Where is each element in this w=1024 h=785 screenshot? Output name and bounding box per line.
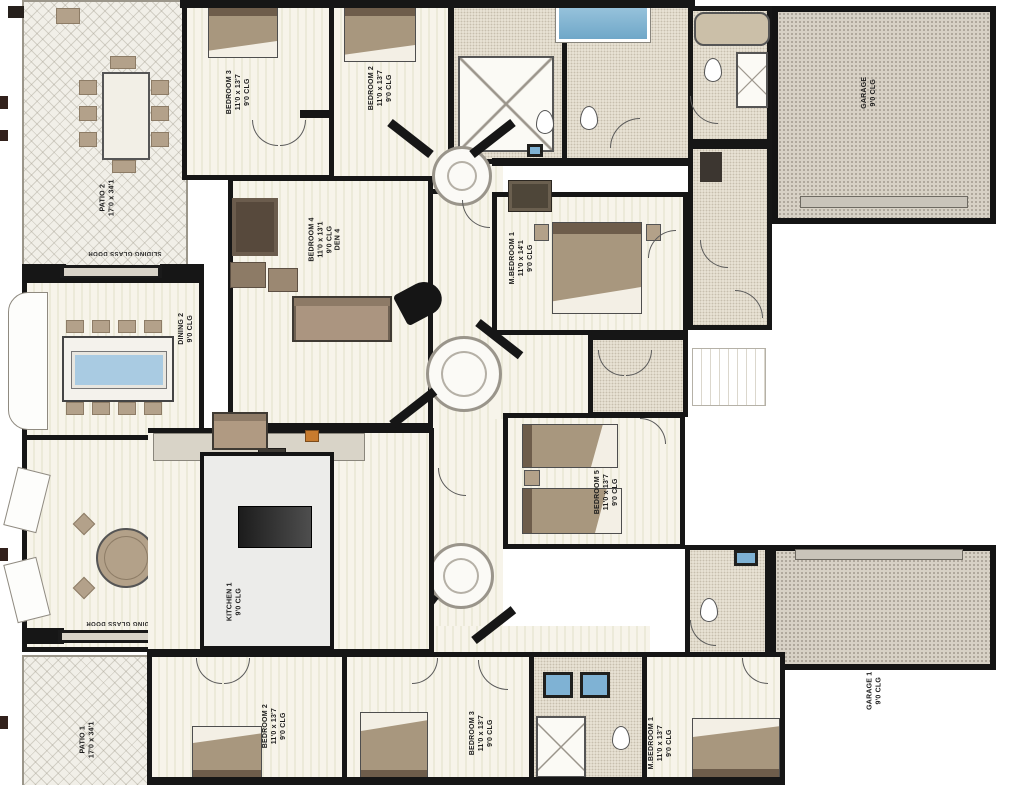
room-dims: 17'0 x 34'1 (108, 180, 117, 217)
room-dims: 11'0 x 13'7 (235, 70, 244, 114)
edge-marker (0, 548, 8, 561)
room-clg: 9'0 CLG (611, 470, 620, 514)
room-label-bedroom-2-top: BEDROOM 2 11'0 x 13'7 9'0 CLG (358, 50, 404, 126)
room-name: M.BEDROOM 1 (648, 717, 657, 769)
dining-chair (92, 320, 110, 333)
toilet (704, 58, 722, 82)
room-label-bedroom-5: BEDROOM 5 11'0 x 13'7 9'0 CLG (582, 455, 632, 530)
cabinet (268, 268, 298, 292)
room-clg: 9'0 CLG (326, 217, 335, 261)
window-glass (527, 144, 543, 157)
dresser (232, 198, 278, 256)
dining-chair (92, 402, 110, 415)
window-glass (734, 550, 758, 566)
room-name: PATIO 1 (79, 722, 88, 759)
dining-chair (144, 402, 162, 415)
dining-table-glass (72, 352, 166, 388)
patio-chair (112, 160, 136, 173)
garage-door (800, 196, 968, 208)
toilet (612, 726, 630, 750)
annotation-sliding-door-top: SLIDING GLASS DOOR (70, 246, 180, 260)
wall-segment (147, 777, 785, 785)
sofa (292, 296, 392, 342)
toilet (580, 106, 598, 130)
edge-marker (0, 130, 8, 141)
cooktop (238, 506, 312, 548)
room-dims: 17'0 x 34'1 (88, 722, 97, 759)
room-name: BEDROOM 2 (368, 66, 377, 110)
outdoor-dining-table (102, 72, 150, 160)
toilet (536, 110, 554, 134)
breakfast-table (96, 528, 156, 588)
dining-chair (118, 320, 136, 333)
room-clg: 9'0 CLG (243, 70, 252, 114)
wall-segment (300, 110, 334, 118)
room-name: GARAGE (861, 77, 870, 109)
room-label-master-bedroom-top: M.BEDROOM 1 11'0 x 14'1 9'0 CLG (500, 220, 544, 296)
room-clg: 9'0 CLG (875, 672, 884, 710)
patio-side-table (56, 8, 80, 24)
room-label-garage-top: GARAGE 9'0 CLG (840, 55, 900, 130)
patio-chair (110, 56, 136, 69)
toilet (700, 598, 718, 622)
room-label-patio-2: PATIO 2 17'0 x 34'1 (88, 170, 128, 226)
room-clg: 9'0 CLG (187, 313, 196, 345)
shower (536, 716, 586, 778)
nightstand (524, 470, 540, 486)
room-clg: 9'0 CLG (279, 704, 288, 748)
room-label-bedroom-4: BEDROOM 4 11'0 x 13'1 9'0 CLG DEN 4 (300, 200, 352, 278)
edge-marker (0, 96, 8, 109)
patio-chair (151, 132, 169, 147)
dining-chair (118, 402, 136, 415)
room-name: PATIO 2 (99, 180, 108, 217)
wall-segment (492, 158, 692, 166)
room-label-kitchen-1: KITCHEN 1 9'0 CLG (212, 568, 258, 636)
floor-plan: PATIO 2 17'0 x 34'1 SLIDING GLASS DOOR D… (0, 0, 1024, 785)
room-dims: 11'0 x 13'7 (657, 717, 666, 769)
patio-chair (79, 132, 97, 147)
room-name: BEDROOM 3 (469, 711, 478, 755)
room-name: GARAGE 1 (867, 672, 876, 710)
cabinet (230, 262, 266, 288)
room-clg: 9'0 CLG (870, 77, 879, 109)
round-rug (426, 336, 502, 412)
garage-door (795, 549, 963, 560)
room-clg: 9'0 CLG (235, 583, 244, 622)
sliding-glass-door-glass (64, 268, 158, 276)
edge-marker (0, 716, 8, 729)
room-clg: 9'0 CLG (486, 711, 495, 755)
room-name: M.BEDROOM 1 (509, 232, 518, 284)
room-label-garage-bottom: GARAGE 1 9'0 CLG (848, 655, 903, 727)
room-name: BEDROOM 3 (226, 70, 235, 114)
room-dims: 11'0 x 13'7 (478, 711, 487, 755)
bay-window (8, 292, 48, 430)
round-rug (432, 146, 492, 206)
room-label-bedroom-2-bottom: BEDROOM 2 11'0 x 13'7 9'0 CLG (252, 682, 298, 770)
dining-chair (66, 320, 84, 333)
patio-chair (151, 106, 169, 121)
bed (208, 6, 278, 58)
patio-chair (79, 80, 97, 95)
room-dims: 11'0 x 13'7 (603, 470, 612, 514)
garage-bottom (770, 545, 996, 670)
room-clg: 9'0 CLG (665, 717, 674, 769)
window-glass (543, 672, 573, 698)
loveseat (212, 412, 268, 450)
window-glass (580, 672, 610, 698)
entry-foyer (588, 335, 688, 417)
master-bed (552, 222, 642, 314)
plan-marker (8, 6, 24, 18)
room-extra: DEN 4 (335, 217, 344, 261)
porch-steps (692, 348, 766, 406)
patio-chair (151, 80, 169, 95)
washer-dryer (700, 152, 722, 182)
room-name: KITCHEN 1 (226, 583, 235, 622)
room-name: BEDROOM 2 (262, 704, 271, 748)
bathtub (694, 12, 770, 46)
room-dims: 11'0 x 13'7 (377, 66, 386, 110)
dining-chair (66, 402, 84, 415)
patio-chair (79, 106, 97, 121)
sliding-glass-door-glass (62, 633, 158, 640)
dining-chair (144, 320, 162, 333)
room-name: BEDROOM 4 (308, 217, 317, 261)
bed (360, 712, 428, 780)
room-name: BEDROOM 5 (594, 470, 603, 514)
room-clg: 9'0 CLG (385, 66, 394, 110)
walk-in-shower (458, 56, 554, 152)
burner (305, 430, 319, 442)
room-label-dining-2: DINING 2 9'0 CLG (166, 298, 208, 360)
master-bed (692, 718, 780, 780)
room-dims: 11'0 x 14'1 (518, 232, 527, 284)
room-clg: 9'0 CLG (526, 232, 535, 284)
room-label-bedroom-3-bottom: BEDROOM 3 11'0 x 13'7 9'0 CLG (460, 690, 504, 776)
room-label-master-bedroom-bottom: M.BEDROOM 1 11'0 x 13'7 9'0 CLG (638, 702, 684, 784)
room-dims: 11'0 x 13'7 (271, 704, 280, 748)
wall-segment (180, 0, 692, 8)
dresser (508, 180, 552, 212)
room-name: DINING 2 (178, 313, 187, 345)
shower (736, 52, 768, 108)
room-label-patio-1: PATIO 1 17'0 x 34'1 (66, 706, 110, 774)
room-dims: 11'0 x 13'1 (317, 217, 326, 261)
